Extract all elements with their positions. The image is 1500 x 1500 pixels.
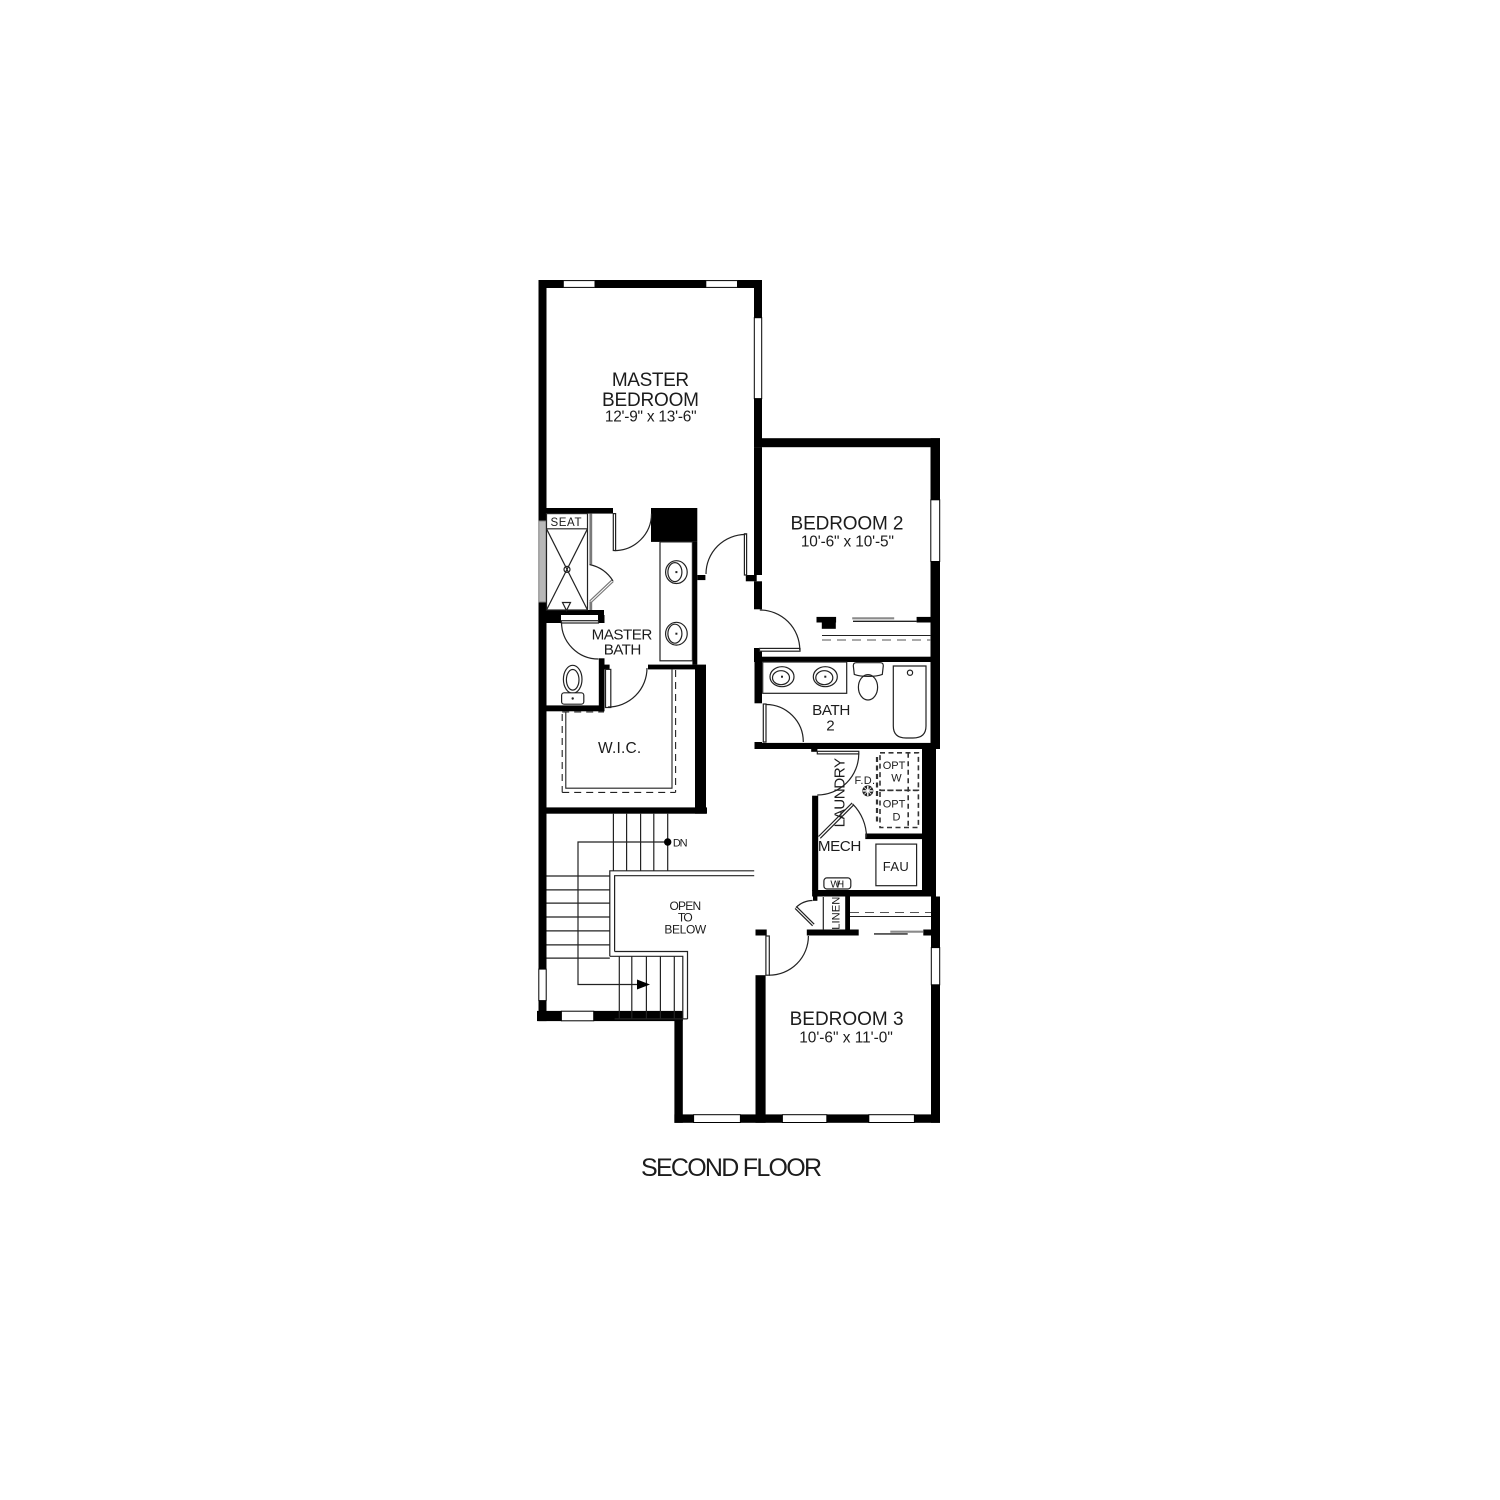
svg-text:FAU: FAU — [883, 859, 909, 874]
svg-text:MECH: MECH — [818, 838, 861, 855]
svg-text:2: 2 — [826, 717, 834, 734]
svg-text:OPT: OPT — [883, 799, 906, 811]
svg-text:F.D.: F.D. — [855, 775, 876, 787]
svg-text:D: D — [893, 812, 901, 824]
svg-text:SEAT: SEAT — [551, 517, 582, 529]
svg-text:DN: DN — [673, 838, 688, 850]
svg-text:BEDROOM 2: BEDROOM 2 — [791, 514, 904, 535]
svg-text:LAUNDRY: LAUNDRY — [832, 758, 849, 828]
svg-text:10'-6" x 10'-5": 10'-6" x 10'-5" — [801, 533, 894, 550]
svg-text:OPT: OPT — [883, 760, 906, 772]
svg-text:10'-6" x 11'-0": 10'-6" x 11'-0" — [799, 1029, 893, 1046]
svg-text:BEDROOM 3: BEDROOM 3 — [790, 1009, 904, 1030]
svg-text:WH: WH — [830, 879, 844, 891]
svg-text:W.I.C.: W.I.C. — [598, 740, 641, 757]
svg-text:SECOND FLOOR: SECOND FLOOR — [641, 1154, 822, 1182]
svg-text:12'-9" x 13'-6": 12'-9" x 13'-6" — [605, 408, 697, 425]
svg-text:LINEN: LINEN — [831, 897, 843, 930]
svg-text:W: W — [891, 772, 902, 784]
svg-text:MASTER: MASTER — [612, 370, 689, 391]
svg-text:BATH: BATH — [604, 642, 642, 659]
svg-text:BELOW: BELOW — [664, 923, 707, 937]
